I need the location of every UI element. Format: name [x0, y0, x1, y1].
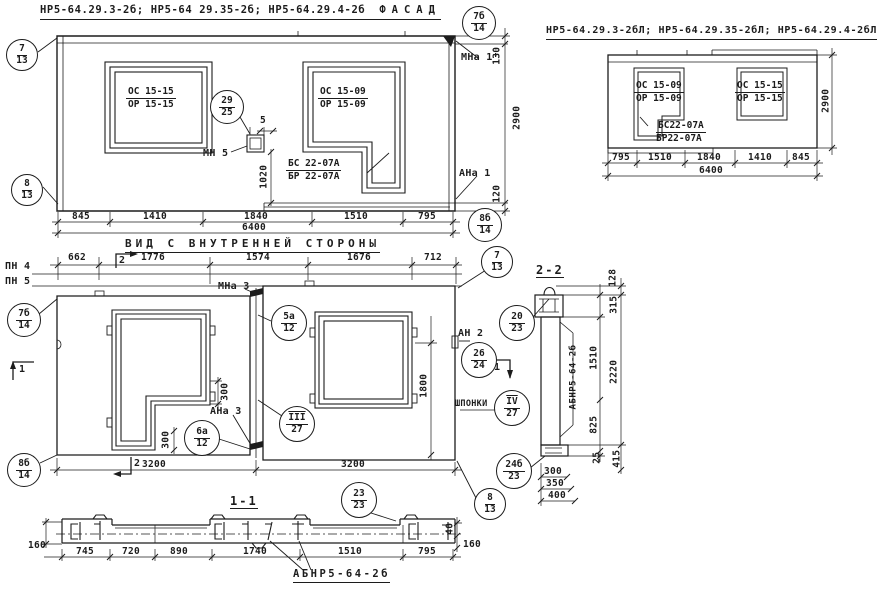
dim-1510: 1510 [344, 212, 368, 222]
dim-415: 415 [612, 450, 622, 468]
dim-795: 795 [612, 153, 630, 163]
dim-total-6400: 6400 [242, 223, 266, 233]
beam-mark-bottom: БР22-07А [656, 133, 706, 145]
callout-8-13-inner: 8 13 [474, 488, 506, 520]
section-marker-2-bottom: 2 [134, 459, 140, 469]
callout-number: 6а [194, 427, 209, 439]
label-mn5: МН 5 [203, 149, 228, 159]
dim-1740: 1740 [243, 547, 267, 557]
panel-mark-section-1-1: АБНР5-64-2б [293, 569, 390, 583]
callout-6a-12: 6а 12 [184, 420, 220, 456]
callout-8b-14-inner: 8б 14 [7, 453, 41, 487]
dim-825: 825 [589, 416, 599, 434]
dim-160-left: 160 [28, 541, 46, 551]
callout-7b-14: 7б 14 [462, 6, 496, 40]
dim-745: 745 [76, 547, 94, 557]
callout-23-23: 23 23 [341, 482, 377, 518]
dim-1676: 1676 [347, 253, 371, 263]
dim-300-step: 300 [220, 383, 230, 401]
blueprint-sheet: НР5-64.29.3-2б; НР5-64 29.35-2б; НР5-64.… [0, 0, 877, 594]
dim-720: 720 [122, 547, 140, 557]
callout-20-23: 20 23 [499, 305, 535, 341]
callout-sheet: 13 [21, 191, 32, 202]
label-pn4: ПН 4 [5, 262, 30, 272]
section-marker-2-top: 2 [119, 256, 125, 266]
beam-mark-top: БС22-07А [656, 120, 706, 133]
title-section-1-1: 1-1 [230, 495, 258, 509]
callout-iv-27: IV 27 [494, 390, 530, 426]
label-mna3: МНа 3 [218, 282, 250, 292]
dim-height-2900: 2900 [821, 89, 831, 113]
label-ana1: АНа 1 [459, 169, 491, 179]
callout-sheet: 27 [291, 425, 302, 436]
window-mark-right-os15-09: ОС 15-09 ОР 15-09 [634, 80, 684, 106]
window-mark-os15-09: ОС 15-09 ОР 15-09 [318, 86, 368, 112]
callout-number: 7 [492, 251, 502, 263]
dim-128: 128 [608, 269, 618, 287]
title-fasad-right: НР5-64.29.3-2бЛ; НР5-64.29.35-2бЛ; НР5-6… [546, 26, 877, 40]
callout-5a-12: 5а 12 [271, 305, 307, 341]
dim-25: 25 [592, 452, 602, 464]
callout-number: 20 [509, 312, 524, 324]
callout-8-13: 8 13 [11, 174, 43, 206]
beam-mark-top: БС 22-07А [286, 158, 341, 171]
dim-845: 845 [72, 212, 90, 222]
dim-2220: 2220 [609, 360, 619, 384]
dim-1574: 1574 [246, 253, 270, 263]
callout-sheet: 27 [506, 409, 517, 420]
callout-number: III [286, 413, 307, 425]
window-mark-top: ОС 15-09 [634, 80, 684, 93]
dim-130: 130 [492, 47, 502, 65]
callout-sheet: 23 [511, 324, 522, 335]
dim-1800: 1800 [419, 374, 429, 398]
dim-890: 890 [170, 547, 188, 557]
dim-315: 315 [609, 296, 619, 314]
callout-sheet: 12 [283, 324, 294, 335]
callout-29-25: 29 25 [210, 90, 244, 124]
callout-sheet: 14 [18, 321, 29, 332]
callout-sheet: 13 [484, 505, 495, 516]
dim-total-6400: 6400 [699, 166, 723, 176]
callout-7-13: 7 13 [6, 39, 38, 71]
label-ana3: АНа 3 [210, 407, 242, 417]
title-fasad-right-codes: НР5-64.29.3-2бЛ; НР5-64.29.35-2бЛ; НР5-6… [546, 25, 877, 36]
callout-number: IV [504, 397, 519, 409]
callout-sheet: 12 [196, 439, 207, 450]
callout-number: 8б [16, 459, 31, 471]
window-mark-bottom: ОР 15-15 [735, 93, 785, 105]
dim-1410: 1410 [143, 212, 167, 222]
callout-sheet: 14 [473, 24, 484, 35]
dim-845: 845 [792, 153, 810, 163]
title-fasad-left-view: ФАСАД [379, 4, 441, 16]
callout-number: 26 [471, 349, 486, 361]
window-mark-right-os15-15: ОС 15-15 ОР 15-15 [735, 80, 785, 106]
callout-8b-14: 8б 14 [468, 208, 502, 242]
dim-1776: 1776 [141, 253, 165, 263]
callout-24b-23: 24б 23 [496, 453, 532, 489]
dim-3200-right: 3200 [341, 460, 365, 470]
beam-mark-bs22: БС 22-07А БР 22-07А [286, 158, 341, 184]
dim-1840: 1840 [697, 153, 721, 163]
dim-1510: 1510 [648, 153, 672, 163]
window-mark-bottom: ОР 15-09 [318, 99, 368, 111]
window-mark-os15-15: ОС 15-15 ОР 15-15 [126, 86, 176, 112]
dim-662: 662 [68, 253, 86, 263]
dim-1510-sec: 1510 [589, 346, 599, 370]
callout-number: 29 [219, 96, 234, 108]
window-mark-bottom: ОР 15-15 [126, 99, 176, 111]
window-mark-top: ОС 15-09 [318, 86, 368, 99]
callout-7-13-inner: 7 13 [481, 246, 513, 278]
dim-1510-s11: 1510 [338, 547, 362, 557]
dim-795-s11: 795 [418, 547, 436, 557]
dim-712: 712 [424, 253, 442, 263]
window-mark-top: ОС 15-15 [735, 80, 785, 93]
callout-number: 8 [22, 179, 32, 191]
callout-number: 7 [17, 44, 27, 56]
dim-350-sec: 350 [546, 479, 564, 489]
window-mark-top: ОС 15-15 [126, 86, 176, 99]
dim-2900: 2900 [512, 106, 522, 130]
dim-1020: 1020 [259, 165, 269, 189]
callout-sheet: 23 [353, 501, 364, 512]
callout-sheet: 14 [479, 226, 490, 237]
callout-number: 24б [503, 460, 524, 472]
callout-number: 5а [281, 312, 296, 324]
callout-sheet: 13 [491, 263, 502, 274]
callout-iii-27: III 27 [279, 406, 315, 442]
label-pn5: ПН 5 [5, 277, 30, 287]
dim-120: 120 [492, 185, 502, 203]
dim-40: 40 [445, 523, 455, 535]
callout-sheet: 13 [16, 56, 27, 67]
dim-300-sec: 300 [544, 467, 562, 477]
label-shponki: ШПОНКИ [455, 400, 488, 409]
callout-sheet: 14 [18, 471, 29, 482]
callout-number: 8б [477, 214, 492, 226]
callout-number: 7б [16, 309, 31, 321]
beam-mark-bottom: БР 22-07А [286, 171, 341, 183]
title-fasad-left: НР5-64.29.3-2б; НР5-64 29.35-2б; НР5-64.… [40, 5, 441, 20]
callout-sheet: 23 [508, 472, 519, 483]
panel-mark-section-2-2: АБНР5-64-2б [570, 346, 579, 410]
dim-1410: 1410 [748, 153, 772, 163]
callout-sheet: 25 [221, 108, 232, 119]
title-inner-view: ВИД С ВНУТРЕННЕЙ СТОРОНЫ [125, 238, 380, 253]
title-fasad-left-codes: НР5-64.29.3-2б; НР5-64 29.35-2б; НР5-64.… [40, 4, 365, 16]
callout-number: 23 [351, 489, 366, 501]
dim-300-bottom: 300 [161, 431, 171, 449]
section-marker-1-left: 1 [19, 365, 25, 375]
dim-1840: 1840 [244, 212, 268, 222]
dim-3200-left: 3200 [142, 460, 166, 470]
dim-795: 795 [418, 212, 436, 222]
window-mark-bottom: ОР 15-09 [634, 93, 684, 105]
label-an2: АН 2 [458, 329, 483, 339]
beam-mark-right-bs22: БС22-07А БР22-07А [656, 120, 706, 146]
callout-26-24: 26 24 [461, 342, 497, 378]
callout-number: 8 [485, 493, 495, 505]
callout-number: 7б [471, 12, 486, 24]
dim-gap-5: 5 [260, 116, 266, 126]
callout-7b-14-inner: 7б 14 [7, 303, 41, 337]
dim-400-sec: 400 [548, 491, 566, 501]
title-section-2-2: 2-2 [536, 264, 564, 278]
dim-160-right: 160 [463, 540, 481, 550]
callout-sheet: 24 [473, 361, 484, 372]
